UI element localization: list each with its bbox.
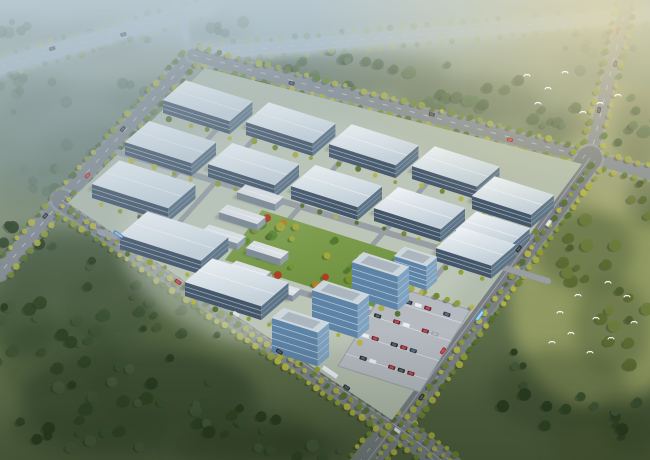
bird: [608, 337, 614, 339]
bird: [593, 317, 599, 319]
bird: [580, 111, 586, 113]
bird: [535, 102, 541, 104]
bird: [545, 87, 551, 89]
industrial-park-aerial-rendering: [0, 0, 650, 460]
bird: [587, 351, 593, 353]
bird: [605, 281, 611, 283]
rendering-canvas: [0, 0, 650, 460]
bird: [549, 341, 555, 343]
atmospheric-haze: [0, 0, 650, 460]
bird: [568, 332, 574, 334]
bird: [575, 294, 581, 296]
bird: [524, 74, 530, 76]
bird: [562, 71, 568, 73]
bird: [631, 321, 637, 323]
bottom-vignette: [0, 0, 650, 460]
bird: [557, 311, 563, 313]
bird: [624, 295, 630, 297]
bird: [597, 102, 603, 104]
bird: [615, 94, 621, 96]
